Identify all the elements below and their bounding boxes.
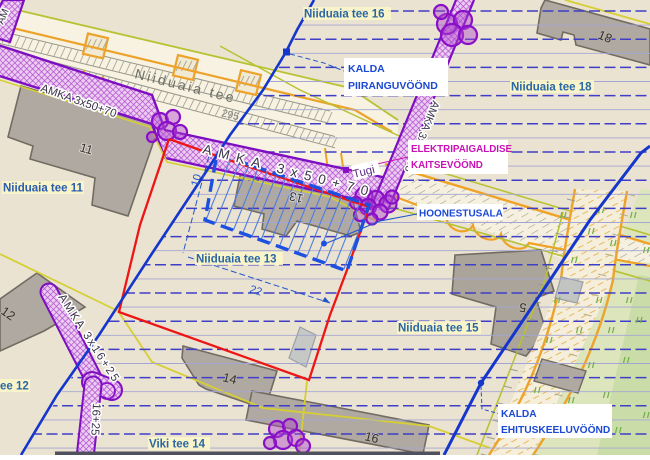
svg-text:Niiduaia tee 15: Niiduaia tee 15	[398, 323, 479, 335]
svg-text:KAITSEVÖÖND: KAITSEVÖÖND	[411, 160, 483, 171]
svg-text:KALDA: KALDA	[501, 409, 537, 420]
svg-text:Niiduaia tee 13: Niiduaia tee 13	[196, 254, 277, 266]
svg-text:Viki tee 14: Viki tee 14	[149, 439, 206, 451]
svg-text:KALDA: KALDA	[348, 63, 385, 75]
svg-text:16+25: 16+25	[88, 403, 102, 436]
svg-text:ELEKTRIPAIGALDISE: ELEKTRIPAIGALDISE	[411, 144, 513, 155]
svg-text:Niiduaia tee 16: Niiduaia tee 16	[304, 9, 385, 21]
svg-text:Niiduaia tee 18: Niiduaia tee 18	[511, 82, 592, 94]
svg-text:PIIRANGUVÖÖND: PIIRANGUVÖÖND	[348, 79, 438, 92]
svg-text:EHITUSKEELUVÖÖND: EHITUSKEELUVÖÖND	[501, 423, 610, 436]
svg-text:ee 12: ee 12	[0, 381, 29, 393]
svg-text:HOONESTUSALA: HOONESTUSALA	[419, 209, 503, 220]
svg-text:Niiduaia tee 11: Niiduaia tee 11	[3, 183, 84, 195]
